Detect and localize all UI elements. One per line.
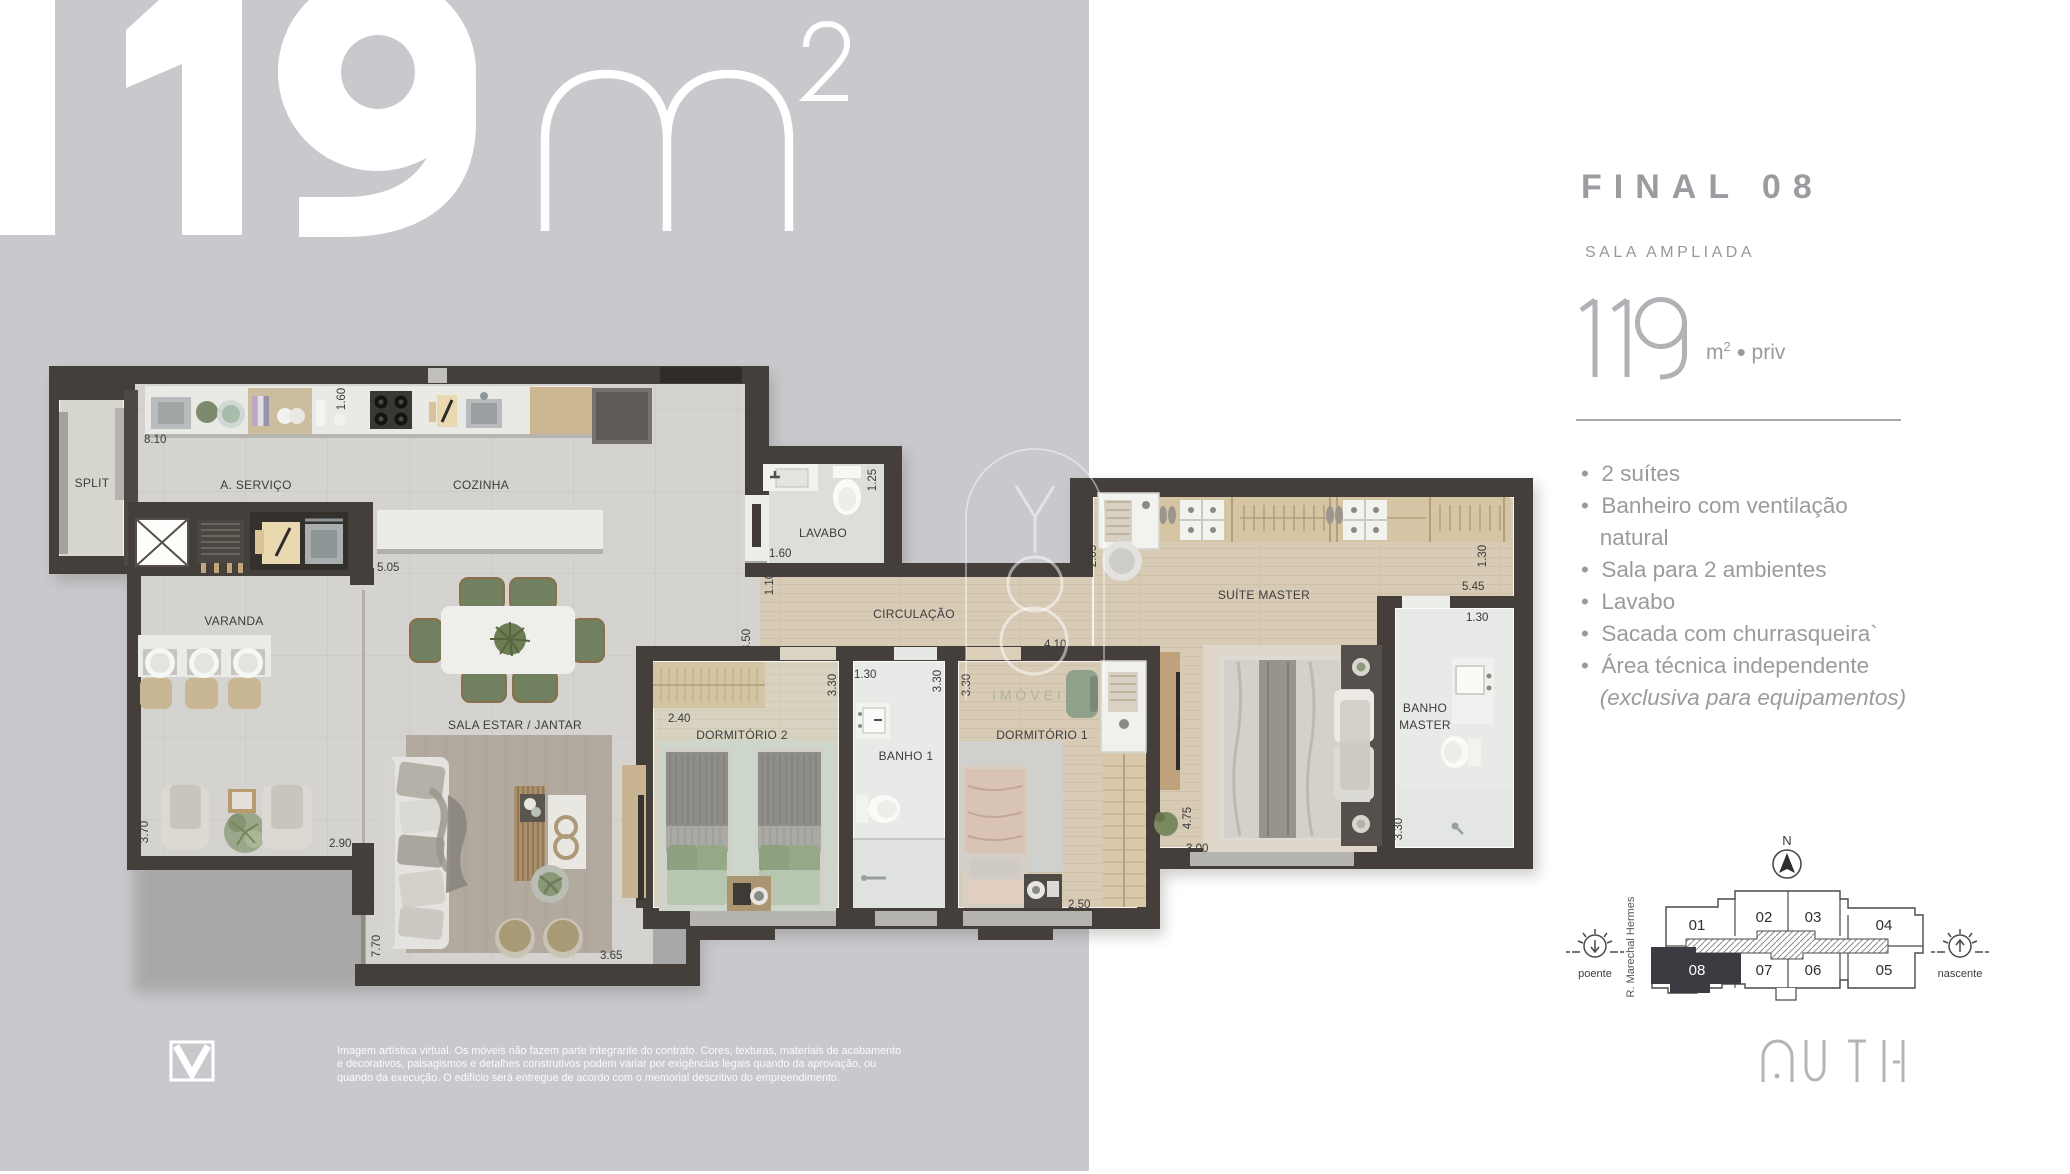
svg-text:IMÓVEIS: IMÓVEIS [992,687,1078,703]
svg-text:1.30: 1.30 [854,669,876,681]
svg-text:DORMITÓRIO 2: DORMITÓRIO 2 [696,727,788,742]
svg-text:CIRCULAÇÃO: CIRCULAÇÃO [873,607,955,621]
svg-text:poente: poente [1578,968,1612,980]
svg-text:N: N [1782,833,1791,848]
svg-text:2.40: 2.40 [668,713,690,725]
svg-text:DORMITÓRIO 1: DORMITÓRIO 1 [996,727,1088,742]
svg-text:01: 01 [1689,917,1706,934]
svg-text:3.30: 3.30 [932,670,944,692]
svg-text:nascente: nascente [1938,968,1983,980]
svg-text:3.30: 3.30 [961,674,973,696]
svg-text:2.90: 2.90 [329,838,351,850]
svg-text:5.45: 5.45 [1462,581,1484,593]
svg-text:LAVABO: LAVABO [799,526,847,540]
svg-text:4.10: 4.10 [1044,639,1066,651]
svg-text:VARANDA: VARANDA [204,614,263,628]
svg-text:SALA ESTAR / JANTAR: SALA ESTAR / JANTAR [448,718,582,732]
svg-text:05: 05 [1876,962,1893,979]
svg-text:04: 04 [1876,917,1893,934]
svg-text:COZINHA: COZINHA [453,478,509,492]
svg-text:06: 06 [1805,962,1822,979]
svg-text:1.10: 1.10 [764,573,776,595]
svg-text:3.00: 3.00 [1186,843,1208,855]
svg-text:3.30: 3.30 [1393,818,1405,840]
svg-text:MASTER: MASTER [1399,718,1451,732]
svg-text:03: 03 [1805,909,1822,926]
svg-text:SUÍTE MASTER: SUÍTE MASTER [1218,587,1310,602]
svg-text:8.10: 8.10 [144,434,166,446]
svg-text:3.65: 3.65 [600,950,622,962]
svg-text:08: 08 [1689,962,1706,979]
svg-text:1.60: 1.60 [336,388,348,410]
svg-text:7.70: 7.70 [371,935,383,957]
svg-text:A. SERVIÇO: A. SERVIÇO [220,478,291,492]
svg-text:1.30: 1.30 [1466,612,1488,624]
svg-text:3.70: 3.70 [139,821,151,843]
svg-text:BANHO: BANHO [1403,701,1447,715]
svg-text:R. Marechal Hermes: R. Marechal Hermes [1625,896,1637,997]
svg-text:02: 02 [1756,909,1773,926]
svg-text:BANHO 1: BANHO 1 [879,749,934,763]
svg-text:3.50: 3.50 [741,629,753,651]
svg-text:2.05: 2.05 [1087,545,1099,567]
svg-text:SPLIT: SPLIT [75,476,110,490]
svg-text:5.05: 5.05 [377,562,399,574]
svg-text:4.75: 4.75 [1182,807,1194,829]
svg-text:2.50: 2.50 [1068,899,1090,911]
svg-text:1.60: 1.60 [769,548,791,560]
svg-text:1.30: 1.30 [1477,545,1489,567]
svg-text:07: 07 [1756,962,1773,979]
svg-text:3.30: 3.30 [827,674,839,696]
svg-text:1.25: 1.25 [867,469,879,491]
